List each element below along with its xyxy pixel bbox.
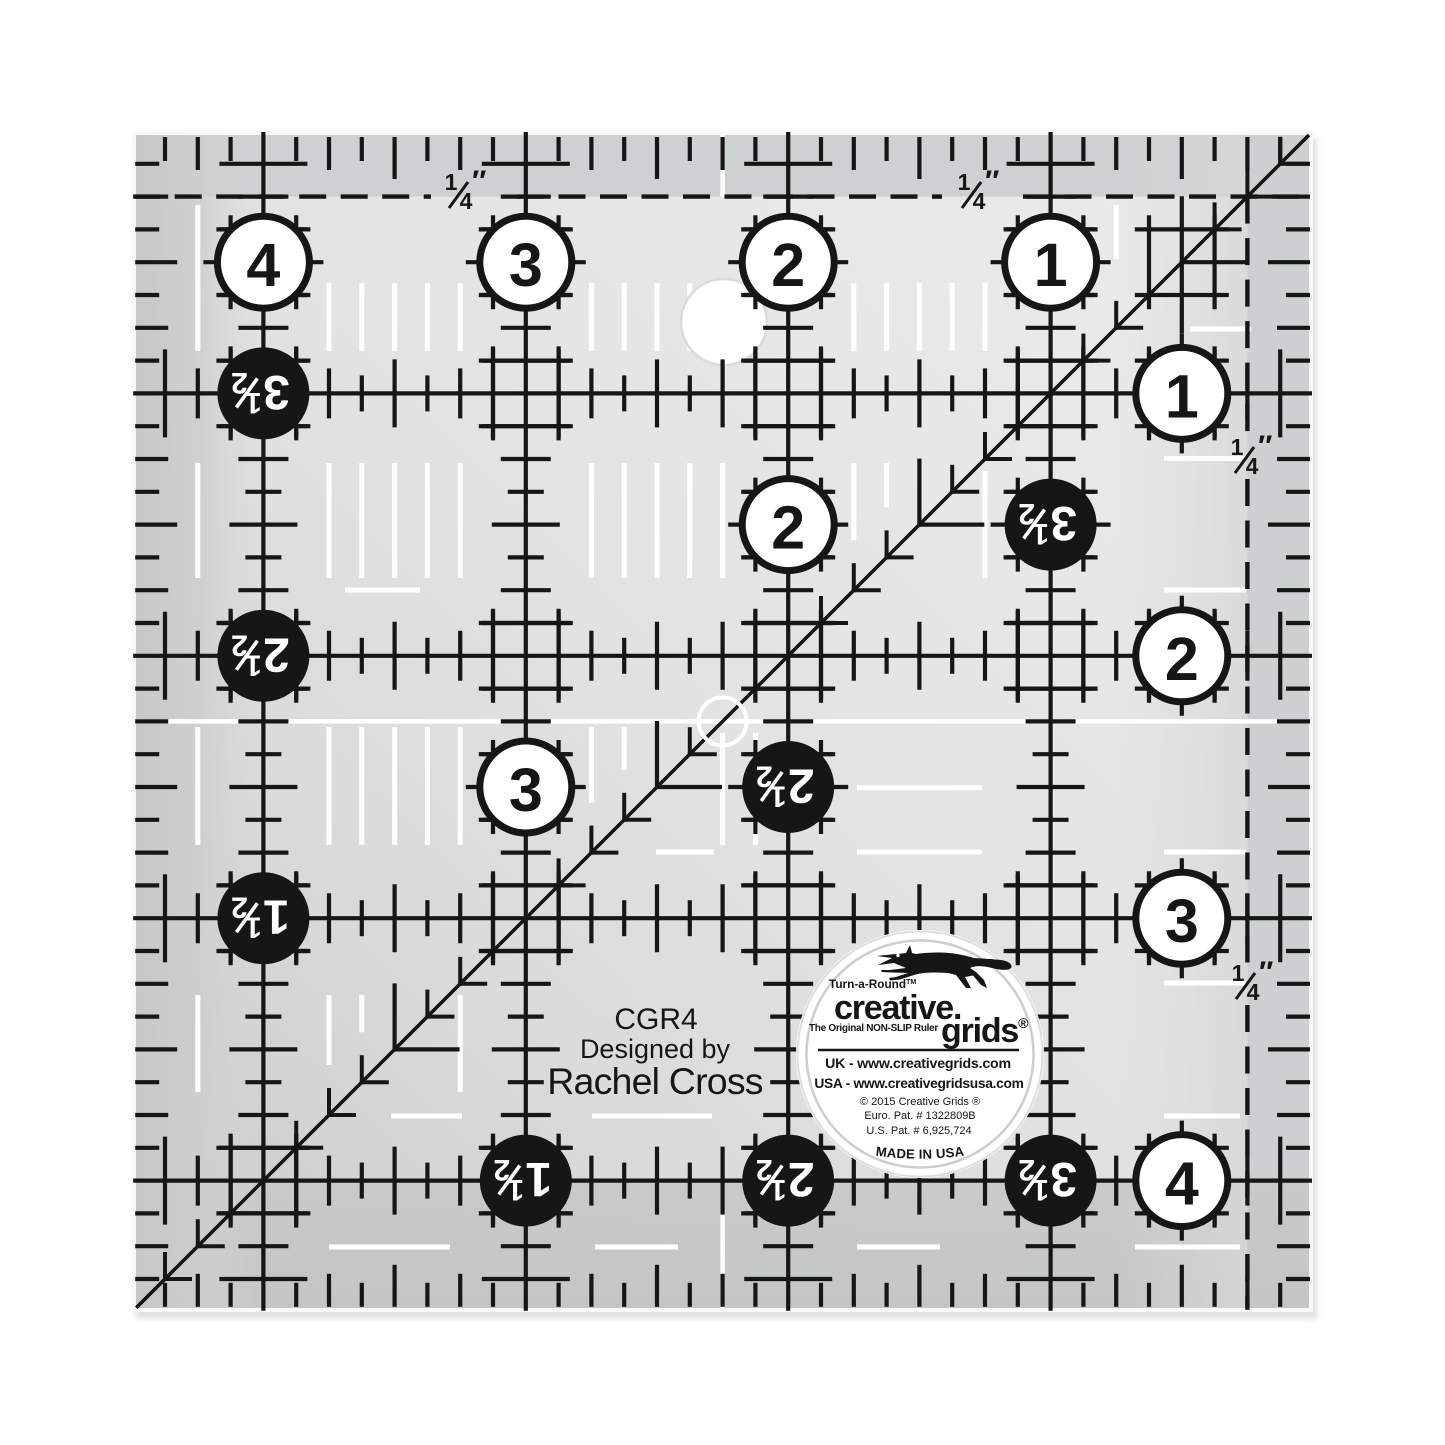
svg-text:CGR4: CGR4 [614, 1003, 697, 1036]
svg-text:2: 2 [771, 231, 805, 299]
svg-text:grids®: grids® [941, 1012, 1029, 1050]
svg-text:2: 2 [788, 759, 815, 812]
svg-text:3: 3 [263, 365, 290, 418]
svg-text:1: 1 [1232, 960, 1245, 986]
svg-text:1: 1 [263, 890, 290, 943]
svg-text:3: 3 [1050, 496, 1077, 549]
svg-text:U.S. Pat. # 6,925,724: U.S. Pat. # 6,925,724 [866, 1125, 971, 1137]
svg-text:The Original NON-SLIP Ruler: The Original NON-SLIP Ruler [809, 1023, 938, 1034]
svg-text:3: 3 [1165, 887, 1199, 955]
svg-text:″: ″ [1258, 430, 1272, 463]
svg-text:2: 2 [771, 494, 805, 562]
svg-text:3: 3 [509, 756, 543, 824]
svg-text:1: 1 [445, 169, 458, 195]
svg-text:3: 3 [1050, 1152, 1077, 1205]
svg-text:1: 1 [958, 169, 971, 195]
svg-text:2: 2 [1165, 625, 1199, 693]
svg-text:USA - www.creativegridsusa.com: USA - www.creativegridsusa.com [814, 1076, 1023, 1091]
svg-text:″: ″ [1259, 956, 1273, 989]
svg-text:2: 2 [788, 1152, 815, 1205]
svg-text:1: 1 [1034, 231, 1068, 299]
svg-text:4: 4 [246, 231, 280, 299]
svg-text:″: ″ [472, 165, 486, 198]
svg-text:1: 1 [525, 1152, 552, 1205]
svg-text:4: 4 [1165, 1150, 1199, 1218]
svg-text:Euro. Pat. # 1322809B: Euro. Pat. # 1322809B [864, 1110, 975, 1122]
svg-text:Rachel Cross: Rachel Cross [547, 1060, 763, 1102]
svg-text:© 2015 Creative Grids ®: © 2015 Creative Grids ® [860, 1096, 980, 1108]
svg-text:2: 2 [263, 627, 290, 680]
svg-text:3: 3 [509, 231, 543, 299]
svg-text:1: 1 [1231, 434, 1244, 460]
svg-text:1: 1 [1165, 362, 1199, 430]
svg-text:UK - www.creativegrids.com: UK - www.creativegrids.com [825, 1056, 1011, 1072]
svg-text:″: ″ [985, 165, 999, 198]
